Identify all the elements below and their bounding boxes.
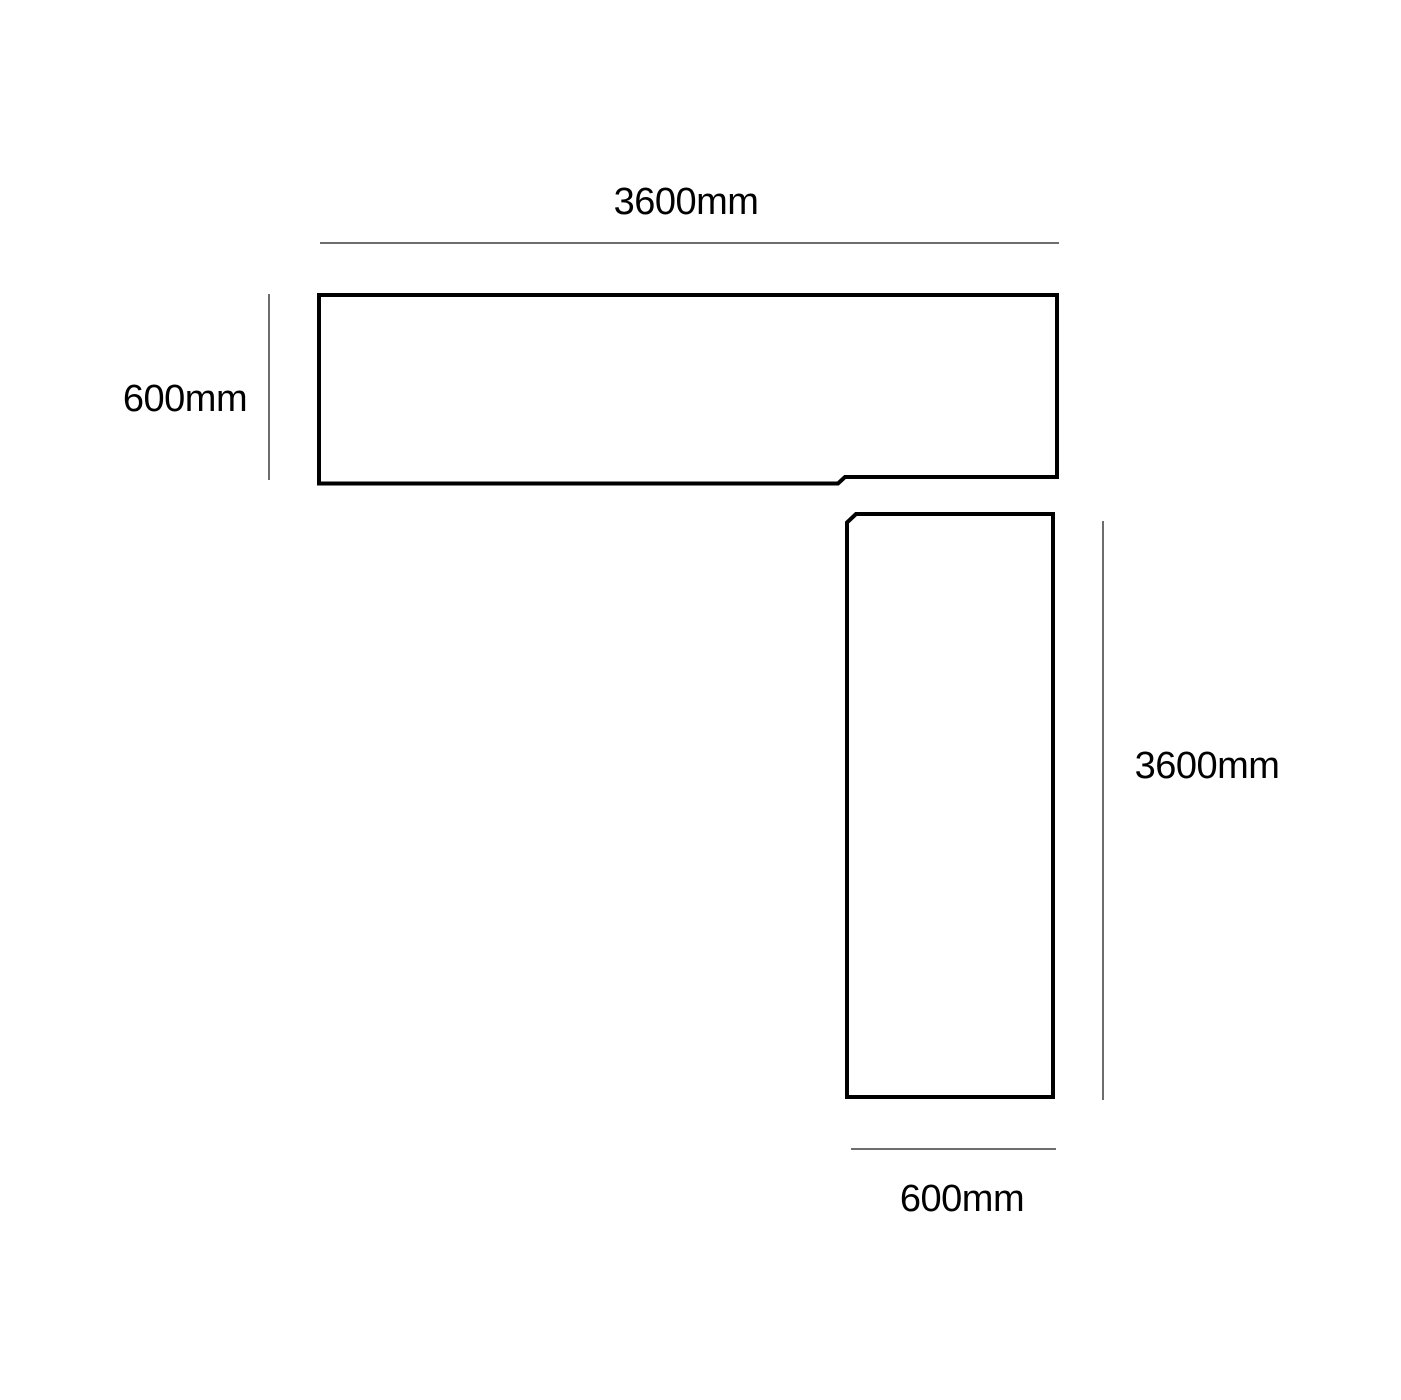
top-length-dimension-label: 3600mm xyxy=(614,183,759,221)
horizontal-worktop-outline xyxy=(319,295,1057,484)
right-length-dimension-label: 3600mm xyxy=(1135,747,1280,785)
left-width-dimension-label: 600mm xyxy=(123,380,247,418)
bottom-width-dimension-label: 600mm xyxy=(900,1180,1024,1218)
worktop-diagram: 3600mm 600mm 3600mm 600mm xyxy=(0,0,1401,1400)
vertical-worktop-outline xyxy=(847,514,1053,1097)
